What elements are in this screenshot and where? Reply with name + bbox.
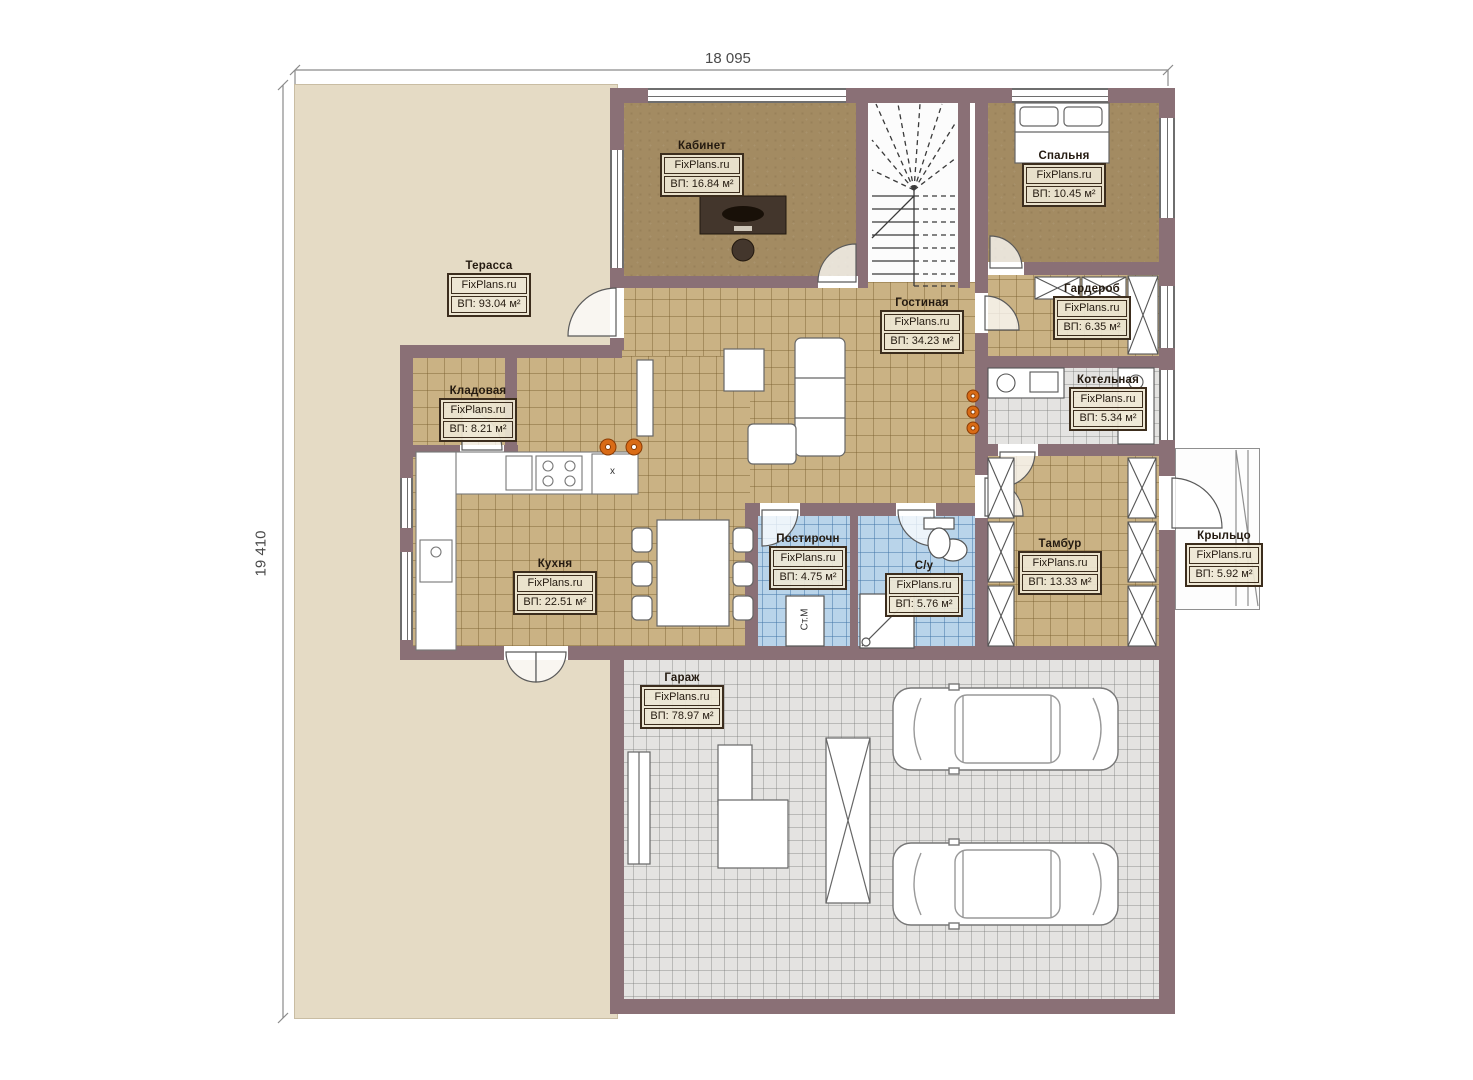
dimension-top-label: 18 095: [705, 50, 751, 67]
dimension-left-label: 19 410: [252, 531, 269, 577]
door-gap-office: [818, 276, 858, 288]
room-label-living: Гостиная FixPlans.ru ВП: 34.23 м²: [870, 297, 974, 354]
door-gap-bedroom: [988, 262, 1024, 275]
room-label-office: Кабинет FixPlans.ru ВП: 16.84 м²: [650, 140, 754, 197]
room-label-laundry: Постирочн FixPlans.ru ВП: 4.75 м²: [760, 533, 856, 590]
floor-plan-canvas: 18 095 19 410 Ст.М x Терасса FixPlans.ru…: [0, 0, 1473, 1080]
window-bedroom-right: [1159, 118, 1175, 218]
wall-bottom-garage: [610, 999, 1175, 1014]
wall-left-garage: [610, 648, 624, 1014]
window-kitchen-left-1: [400, 478, 413, 528]
dimension-line-left: [278, 80, 288, 1023]
wall-bedroom-left: [975, 88, 988, 278]
door-gap-hall: [975, 475, 988, 518]
room-label-boiler: Котельная FixPlans.ru ВП: 5.34 м²: [1058, 374, 1158, 431]
room-label-bathroom: С/у FixPlans.ru ВП: 5.76 м²: [876, 560, 972, 617]
x-marker: x: [610, 466, 615, 477]
room-label-bedroom: Спальня FixPlans.ru ВП: 10.45 м²: [1012, 150, 1116, 207]
window-wardrobe-right: [1159, 286, 1175, 348]
wall-stair-right: [958, 100, 970, 288]
window-boiler-right: [1159, 370, 1175, 440]
stairwell-floor: [866, 100, 962, 290]
room-label-wardrobe: Гардероб FixPlans.ru ВП: 6.35 м²: [1042, 283, 1142, 340]
wall-laundry-left: [745, 510, 758, 652]
window-office-left: [610, 150, 624, 268]
wall-stair-left: [856, 100, 868, 288]
dimension-line-top: [290, 65, 1173, 86]
washer-label: Ст.М: [800, 597, 811, 643]
door-gap-pantry: [460, 445, 504, 457]
room-label-porch: Крыльцо FixPlans.ru ВП: 5.92 м²: [1178, 530, 1270, 587]
door-gap-main-entry: [504, 646, 568, 660]
wall-wardrobe-bottom: [985, 356, 1160, 368]
room-label-kitchen: Кухня FixPlans.ru ВП: 22.51 м²: [503, 558, 607, 615]
door-gap-front: [1159, 476, 1175, 530]
door-gap-boiler: [998, 444, 1038, 456]
window-kitchen-left-2: [400, 552, 413, 640]
room-label-pantry: Кладовая FixPlans.ru ВП: 8.21 м²: [428, 385, 528, 442]
door-gap-bathroom: [896, 503, 936, 516]
door-gap-wardrobe: [975, 293, 988, 333]
room-label-terrace: Терасса FixPlans.ru ВП: 93.04 м²: [437, 260, 541, 317]
window-office-top: [648, 88, 846, 103]
door-gap-terrace: [610, 288, 624, 338]
wall-right-garage: [1159, 648, 1175, 1014]
window-bedroom-top: [1012, 88, 1108, 103]
wall-garage-top: [610, 646, 1175, 660]
door-gap-laundry: [760, 503, 800, 516]
room-label-vestibule: Тамбур FixPlans.ru ВП: 13.33 м²: [1008, 538, 1112, 595]
room-label-garage: Гараж FixPlans.ru ВП: 78.97 м²: [630, 672, 734, 729]
